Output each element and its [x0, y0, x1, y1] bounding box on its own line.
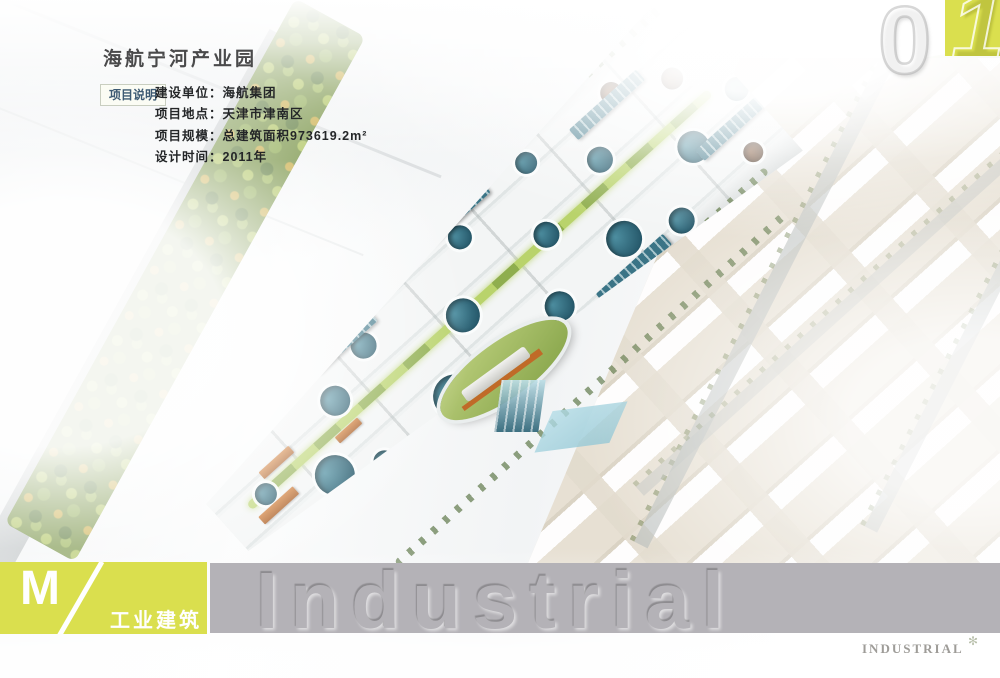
slash-divider [57, 562, 104, 634]
project-info-line: 设计时间：2011年 [155, 147, 367, 168]
project-info: 建设单位：海航集团 项目地点：天津市津南区 项目规模：总建筑面积973619.2… [155, 83, 367, 168]
project-info-line: 建设单位：海航集团 [155, 83, 367, 104]
orange-roof-building [413, 434, 454, 472]
canopy-roof-hole [385, 496, 416, 527]
district-road [865, 27, 1000, 532]
canopy-roof-hole [657, 63, 688, 94]
page-number-zero: 0 [878, 0, 931, 96]
canopy-roof-hole [307, 447, 363, 503]
category-index-letter: M [20, 565, 60, 613]
canopy-roof-hole [369, 446, 400, 477]
project-info-line: 项目地点：天津市津南区 [155, 104, 367, 125]
category-label-en: INDUSTRIAL [862, 641, 964, 657]
presentation-board: 海航宁河产业园 项目说明 建设单位：海航集团 项目地点：天津市津南区 项目规模：… [0, 0, 1000, 678]
watermark-band: Industrial [210, 563, 1000, 633]
orange-roof-building [450, 419, 486, 452]
glass-tower [494, 380, 545, 432]
project-info-line: 项目规模：总建筑面积973619.2m² [155, 126, 367, 147]
watermark-text: Industrial [256, 563, 736, 633]
canopy-roof-hole [511, 147, 542, 178]
orange-roof-building [254, 399, 287, 430]
category-block: M 工业建筑 [0, 562, 207, 634]
page-title: 海航宁河产业园 [103, 44, 257, 71]
canopy-roof-hole [443, 220, 477, 254]
page-number-badge: 1 [945, 0, 1000, 56]
page-number-one: 1 [951, 0, 1000, 56]
canopy-roof-hole [739, 138, 767, 166]
glass-building-bar [569, 70, 645, 141]
category-label-cn: 工业建筑 [110, 604, 202, 633]
leaf-sprig-icon: ✻ [968, 634, 978, 648]
